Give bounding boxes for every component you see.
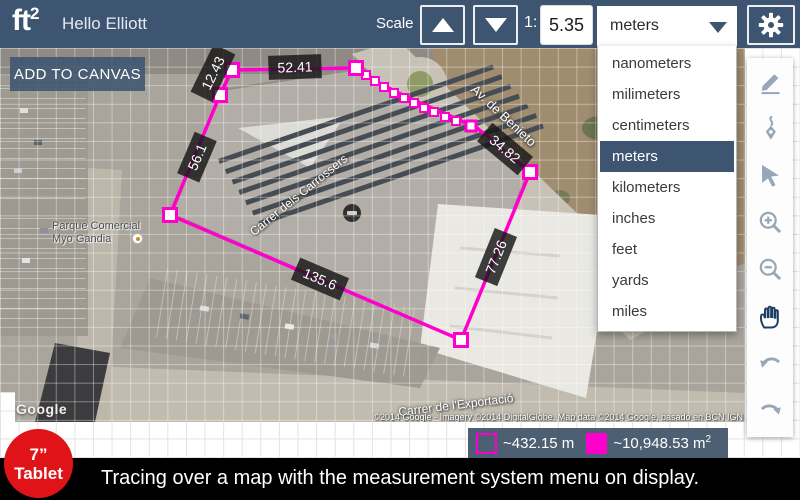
pencil-icon bbox=[757, 68, 784, 95]
pan-tool-button[interactable] bbox=[747, 293, 793, 340]
cursor-arrow-icon bbox=[757, 162, 784, 189]
redo-arrow-icon bbox=[757, 397, 784, 424]
unit-dropdown-menu: nanometers milimeters centimeters meters… bbox=[597, 46, 737, 332]
area-swatch-icon bbox=[586, 433, 607, 454]
redo-button[interactable] bbox=[747, 387, 793, 434]
scale-ratio-prefix: 1: bbox=[524, 14, 537, 32]
unit-select-dropdown[interactable]: meters bbox=[597, 6, 737, 46]
curve-handle[interactable] bbox=[440, 112, 450, 122]
curve-handle[interactable] bbox=[389, 88, 399, 98]
tool-palette bbox=[747, 58, 793, 437]
unit-option-inches[interactable]: inches bbox=[598, 203, 736, 234]
scale-label: Scale bbox=[376, 15, 414, 32]
scale-decrease-button[interactable] bbox=[473, 5, 518, 45]
unit-option-yards[interactable]: yards bbox=[598, 265, 736, 296]
app-logo: ft2 bbox=[12, 4, 38, 38]
curve-handle[interactable] bbox=[379, 82, 389, 92]
curve-handle[interactable] bbox=[409, 98, 419, 108]
zoom-out-icon bbox=[757, 256, 784, 283]
scale-value-input[interactable] bbox=[540, 5, 593, 45]
select-tool-button[interactable] bbox=[747, 152, 793, 199]
measurement-legend: ~432.15 m ~10,948.53 m2 bbox=[468, 428, 728, 458]
unit-option-meters[interactable]: meters bbox=[600, 141, 734, 172]
unit-option-feet[interactable]: feet bbox=[598, 234, 736, 265]
zoom-in-icon bbox=[757, 209, 784, 236]
polygon-vertex[interactable] bbox=[348, 60, 364, 76]
curve-handle[interactable] bbox=[451, 116, 461, 126]
unit-option-centimeters[interactable]: centimeters bbox=[598, 110, 736, 141]
undo-arrow-icon bbox=[757, 350, 784, 377]
gear-icon bbox=[757, 11, 785, 39]
zoom-in-tool-button[interactable] bbox=[747, 199, 793, 246]
zoom-out-tool-button[interactable] bbox=[747, 246, 793, 293]
poi-label: Parque Comercial Myo Gandia bbox=[52, 220, 140, 246]
curve-handle[interactable] bbox=[399, 93, 409, 103]
unit-option-miles[interactable]: miles bbox=[598, 296, 736, 327]
unit-selected-value: meters bbox=[610, 17, 659, 35]
area-value: ~10,948.53 m2 bbox=[613, 434, 711, 452]
up-arrow-icon bbox=[432, 18, 454, 32]
curve-handle[interactable] bbox=[429, 107, 439, 117]
app-window: 12.43 52.41 34.82 77.26 135.6 56.1 Av. d… bbox=[0, 0, 800, 500]
down-arrow-icon bbox=[485, 18, 507, 32]
perimeter-value: ~432.15 m bbox=[503, 435, 574, 452]
hand-icon bbox=[756, 303, 784, 331]
app-header: ft2 Hello Elliott Scale 1: meters bbox=[0, 0, 800, 48]
add-to-canvas-button[interactable]: ADD TO CANVAS bbox=[10, 57, 145, 91]
perimeter-swatch-icon bbox=[476, 433, 497, 454]
poi-marker-icon bbox=[132, 233, 143, 244]
polygon-vertex[interactable] bbox=[465, 120, 478, 133]
dropdown-caret-icon bbox=[709, 22, 727, 33]
unit-option-milimeters[interactable]: milimeters bbox=[598, 79, 736, 110]
google-watermark: Google bbox=[16, 401, 67, 417]
map-attribution: ©2014 Google - Imagery ©2014 DigitalGlob… bbox=[373, 412, 743, 422]
scale-increase-button[interactable] bbox=[420, 5, 465, 45]
greeting-text: Hello Elliott bbox=[62, 14, 147, 34]
map-edge-notch bbox=[0, 392, 15, 422]
undo-button[interactable] bbox=[747, 340, 793, 387]
settings-button[interactable] bbox=[747, 5, 795, 45]
polygon-vertex[interactable] bbox=[453, 332, 469, 348]
unit-option-nanometers[interactable]: nanometers bbox=[598, 48, 736, 79]
polygon-vertex[interactable] bbox=[162, 207, 178, 223]
pen-icon bbox=[757, 115, 784, 142]
segment-measurement: 52.41 bbox=[268, 54, 322, 80]
caption-bar: Tracing over a map with the measurement … bbox=[0, 458, 800, 500]
pen-tool-button[interactable] bbox=[747, 105, 793, 152]
unit-option-kilometers[interactable]: kilometers bbox=[598, 172, 736, 203]
curve-handle[interactable] bbox=[419, 103, 429, 113]
device-badge: 7” Tablet bbox=[4, 429, 73, 498]
pencil-tool-button[interactable] bbox=[747, 58, 793, 105]
